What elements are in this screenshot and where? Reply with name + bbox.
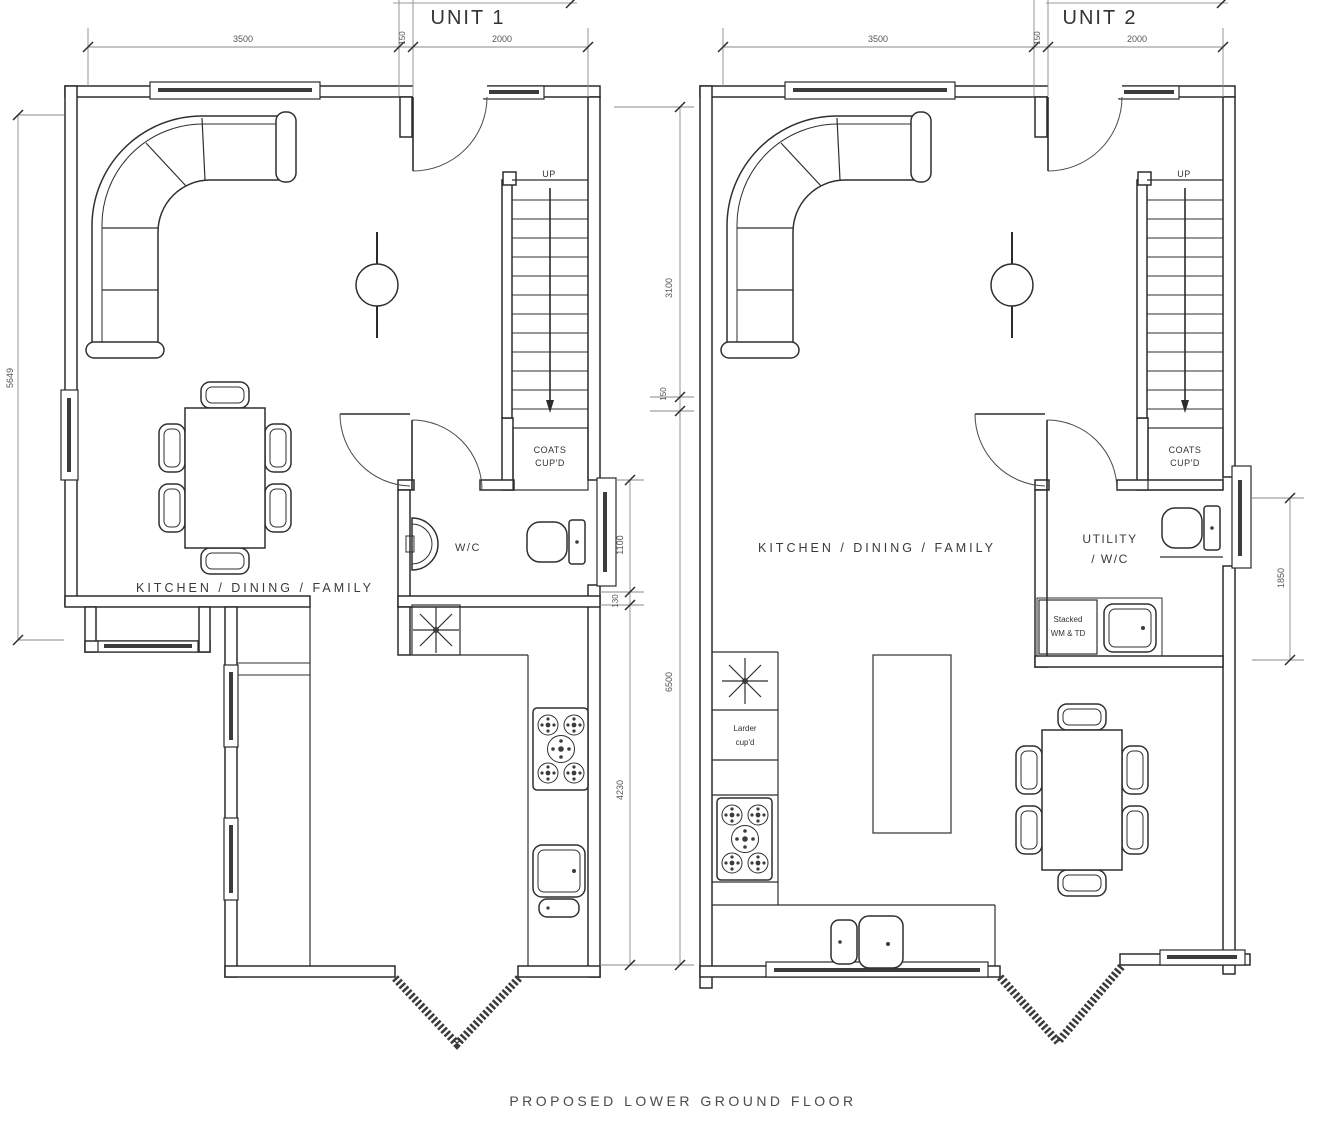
- unit2-larder-label-2: cup'd: [736, 738, 755, 747]
- unit2-plan: UP COATS CUP'D UTILITY / W/C Stacked WM …: [700, 82, 1251, 1042]
- unit1-coats-label-1: COATS: [534, 445, 567, 455]
- mid-dim-130: 130: [611, 594, 620, 608]
- unit2-sofa-wrap: [721, 112, 931, 358]
- break-line: [1000, 966, 1122, 1042]
- unit2-coats-label-2: CUP'D: [1170, 458, 1200, 468]
- radiator-icon: [356, 232, 398, 338]
- unit2-stacked-label-1: Stacked: [1054, 615, 1083, 624]
- hob-icon: [717, 798, 772, 880]
- unit2-dim-2000: 2000: [1127, 34, 1147, 44]
- unit1-wc-label: W/C: [455, 542, 481, 554]
- unit1-dim-150: 150: [398, 31, 407, 45]
- floor-plan-sheet: UP COATS CUP'D W/C: [0, 0, 1320, 1133]
- unit2-coats-label-1: COATS: [1169, 445, 1202, 455]
- unit1-up-label: UP: [542, 169, 556, 179]
- unit2-utility: UTILITY / W/C Stacked WM & TD: [1037, 506, 1220, 656]
- unit1-kitchen: [410, 605, 588, 966]
- radiator-icon: [991, 232, 1033, 338]
- hob-icon: [533, 708, 588, 790]
- unit2-up-label: UP: [1177, 169, 1191, 179]
- unit1-room-label: KITCHEN / DINING / FAMILY: [136, 581, 374, 595]
- mid-dim-4230: 4230: [615, 780, 625, 800]
- toilet-icon: [1162, 506, 1220, 550]
- mid-dim-150: 150: [659, 387, 668, 401]
- drawing-title: PROPOSED LOWER GROUND FLOOR: [509, 1093, 856, 1109]
- unit2-utility-label-2: / W/C: [1091, 552, 1129, 566]
- unit1-title: UNIT 1: [431, 7, 506, 29]
- unit1-dim-2000: 2000: [492, 34, 512, 44]
- unit1-dining-table: [159, 382, 291, 574]
- unit1-wc: W/C: [406, 518, 585, 570]
- unit1-plan: UP COATS CUP'D W/C: [61, 82, 616, 1044]
- mid-dim-1100: 1100: [615, 535, 625, 554]
- unit1-dim-5649: 5649: [5, 368, 15, 388]
- unit2-dim-150: 150: [1033, 31, 1042, 45]
- sink-icon: [533, 845, 585, 917]
- kitchen-island: [873, 655, 951, 833]
- unit2-dim-1850: 1850: [1276, 568, 1286, 588]
- corner-sofa: [86, 112, 296, 358]
- basin-icon: [412, 518, 438, 570]
- corner-sofa: [721, 112, 931, 358]
- unit1-coats-label-2: CUP'D: [535, 458, 565, 468]
- unit2-larder-label-1: Larder: [733, 724, 756, 733]
- floor-plan-drawing: UP COATS CUP'D W/C: [0, 0, 1320, 1133]
- unit2-title: UNIT 2: [1063, 7, 1138, 29]
- unit2-dining-table: [1016, 704, 1148, 896]
- unit1-coats-cupboard: COATS CUP'D: [513, 428, 588, 490]
- unit1-dim-3500: 3500: [233, 34, 253, 44]
- unit2-room-label: KITCHEN / DINING / FAMILY: [758, 541, 996, 555]
- unit2-dim-3500: 3500: [868, 34, 888, 44]
- break-line: [395, 978, 519, 1044]
- unit2-utility-label-1: UTILITY: [1082, 532, 1137, 546]
- sink-icon: [831, 916, 903, 968]
- unit1-stairs: UP: [502, 169, 588, 418]
- mid-dim-6500: 6500: [664, 672, 674, 692]
- fridge-star-icon: [722, 658, 768, 704]
- utility-sink-icon: [1104, 604, 1156, 652]
- unit2-stairs: UP: [1137, 169, 1223, 418]
- mid-dim-3100: 3100: [664, 278, 674, 298]
- toilet-icon: [527, 520, 585, 564]
- unit2-kitchen: Larder cup'd: [712, 652, 995, 968]
- fridge-star-icon: [413, 607, 459, 653]
- unit2-stacked-label-2: WM & TD: [1051, 629, 1086, 638]
